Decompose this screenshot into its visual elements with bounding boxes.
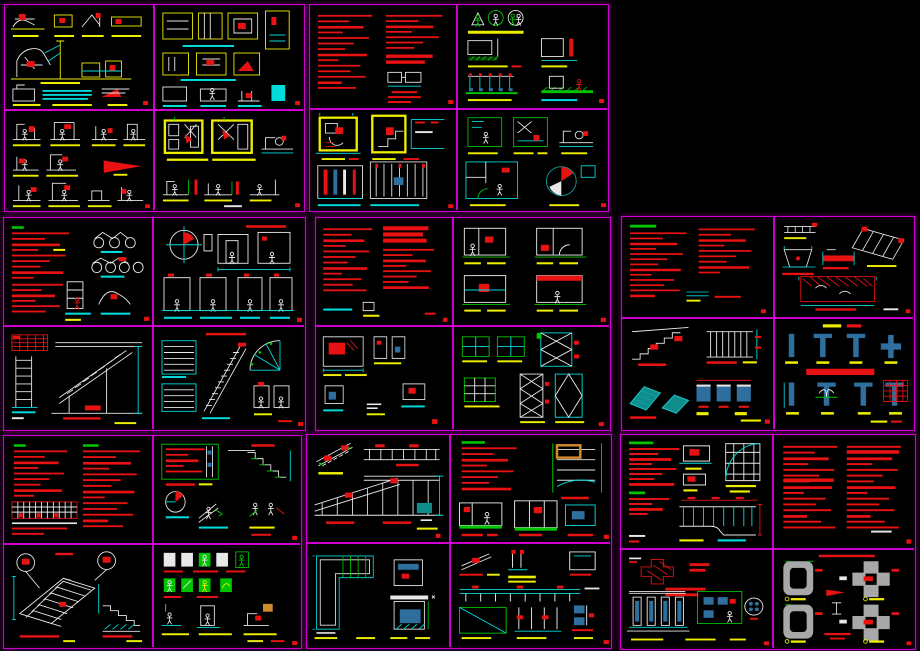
sheet-f3[interactable] xyxy=(4,545,152,647)
sheet-b4-drawing xyxy=(458,110,607,210)
sheet-divider xyxy=(153,5,155,210)
sheet-divider xyxy=(452,218,454,429)
sheet-d4[interactable] xyxy=(454,327,609,429)
sheet-divider xyxy=(4,325,304,327)
sheet-f1[interactable] xyxy=(4,436,152,543)
sheet-b1[interactable] xyxy=(310,5,456,108)
sheet-d2[interactable] xyxy=(454,218,609,325)
sheet-h4-drawing xyxy=(774,550,914,648)
sheet-a4-drawing xyxy=(155,111,303,210)
sheet-g1-drawing xyxy=(307,435,449,542)
sheet-g1[interactable] xyxy=(307,435,449,542)
sheet-e4-drawing xyxy=(775,319,913,429)
sheet-e2-drawing xyxy=(775,217,913,317)
sheet-d1-notes xyxy=(316,218,452,325)
sheet-a2-drawing xyxy=(155,5,303,109)
drawing-sheet-group-5[interactable] xyxy=(621,216,915,431)
sheet-divider xyxy=(621,548,914,550)
sheet-g4-drawing xyxy=(451,544,610,647)
sheet-divider xyxy=(5,109,303,111)
sheet-divider xyxy=(152,436,154,647)
drawing-sheet-group-6[interactable] xyxy=(3,435,302,649)
sheet-a3[interactable] xyxy=(5,111,153,210)
sheet-divider xyxy=(310,108,607,110)
sheet-b2[interactable] xyxy=(458,5,607,108)
sheet-divider xyxy=(622,317,913,319)
sheet-e3-drawing xyxy=(622,319,773,429)
sheet-a1[interactable] xyxy=(5,5,153,109)
sheet-h2[interactable] xyxy=(774,435,914,548)
sheet-divider xyxy=(307,542,610,544)
sheet-divider xyxy=(773,217,775,429)
sheet-c1[interactable] xyxy=(4,218,152,325)
sheet-d2-drawing xyxy=(454,218,609,325)
sheet-b4[interactable] xyxy=(458,110,607,210)
sheet-g4[interactable] xyxy=(451,544,610,647)
sheet-c3[interactable] xyxy=(4,327,152,429)
sheet-h1[interactable] xyxy=(621,435,772,548)
drawing-sheet-group-8[interactable] xyxy=(620,434,916,650)
sheet-f2-drawing xyxy=(154,436,300,543)
sheet-a4[interactable] xyxy=(155,111,303,210)
sheet-divider xyxy=(449,435,451,647)
sheet-d4-drawing xyxy=(454,327,609,429)
sheet-e1-notes xyxy=(622,217,773,317)
drawing-sheet-group-3[interactable] xyxy=(3,217,306,431)
sheet-divider xyxy=(152,218,154,429)
sheet-c4-drawing xyxy=(154,327,304,429)
sheet-f1-notes xyxy=(4,436,152,543)
sheet-d3-drawing xyxy=(316,327,452,429)
sheet-c3-drawing xyxy=(4,327,152,429)
sheet-e1[interactable] xyxy=(622,217,773,317)
sheet-divider xyxy=(772,435,774,648)
sheet-b2-drawing xyxy=(458,5,607,108)
sheet-a1-drawing xyxy=(5,5,153,109)
cad-model-space xyxy=(0,0,920,651)
drawing-sheet-group-7[interactable] xyxy=(306,434,612,649)
sheet-c2-drawing xyxy=(154,218,304,325)
sheet-f3-drawing xyxy=(4,545,152,647)
sheet-h3[interactable] xyxy=(621,550,772,648)
sheet-g2-drawing xyxy=(451,435,610,542)
drawing-sheet-group-2[interactable] xyxy=(309,4,609,212)
sheet-d1[interactable] xyxy=(316,218,452,325)
sheet-divider xyxy=(316,325,609,327)
sheet-a2[interactable] xyxy=(155,5,303,109)
sheet-divider xyxy=(4,543,300,545)
sheet-f4-drawing xyxy=(154,545,300,647)
sheet-a3-drawing xyxy=(5,111,153,210)
drawing-sheet-group-4[interactable] xyxy=(315,217,611,431)
sheet-g3-drawing xyxy=(307,544,449,647)
sheet-h1-drawing xyxy=(621,435,772,548)
sheet-c4[interactable] xyxy=(154,327,304,429)
sheet-g2[interactable] xyxy=(451,435,610,542)
sheet-c2[interactable] xyxy=(154,218,304,325)
sheet-g3[interactable] xyxy=(307,544,449,647)
sheet-e4[interactable] xyxy=(775,319,913,429)
sheet-h3-drawing xyxy=(621,550,772,648)
sheet-b3[interactable] xyxy=(310,110,456,210)
drawing-sheet-group-1[interactable] xyxy=(4,4,305,212)
sheet-e3[interactable] xyxy=(622,319,773,429)
sheet-f4[interactable] xyxy=(154,545,300,647)
sheet-b3-drawing xyxy=(310,110,456,210)
sheet-b1-notes xyxy=(310,5,456,108)
sheet-h4[interactable] xyxy=(774,550,914,648)
sheet-c1-notes xyxy=(4,218,152,325)
sheet-f2[interactable] xyxy=(154,436,300,543)
sheet-e2[interactable] xyxy=(775,217,913,317)
sheet-h2-notes xyxy=(774,435,914,548)
sheet-d3[interactable] xyxy=(316,327,452,429)
